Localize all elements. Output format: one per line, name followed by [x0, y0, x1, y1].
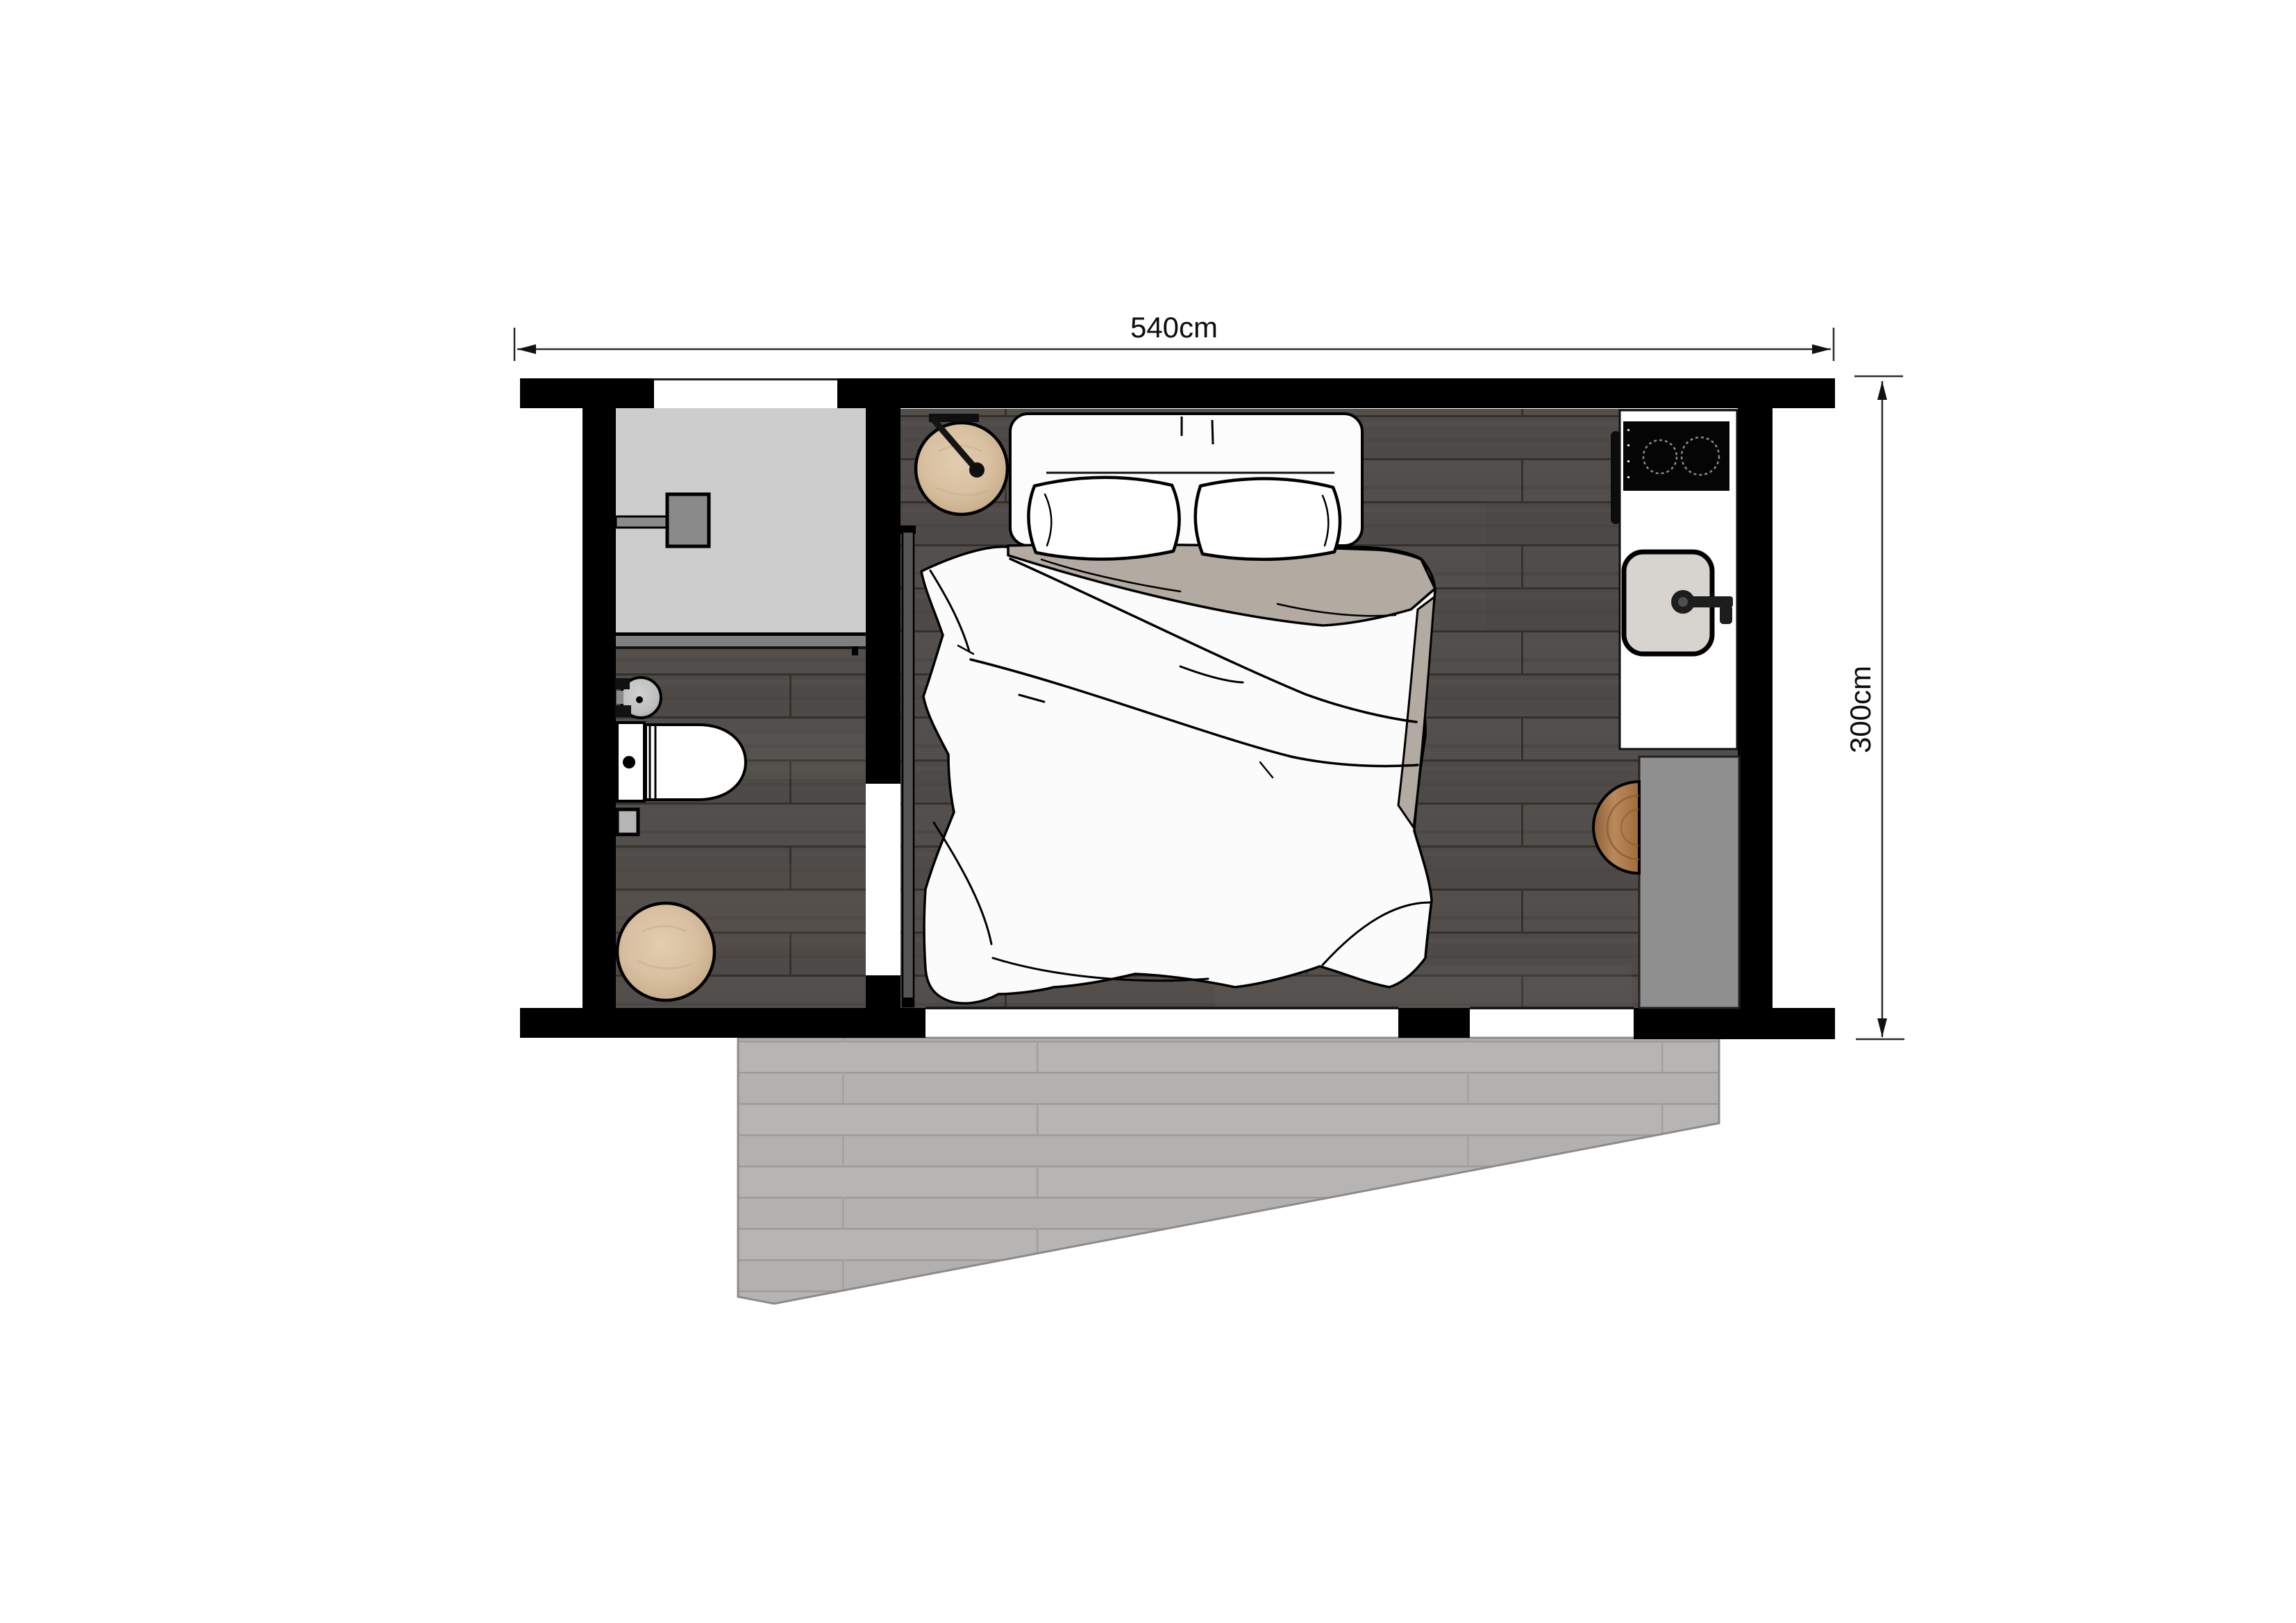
svg-text:300cm: 300cm	[1844, 666, 1877, 753]
svg-text:540cm: 540cm	[1130, 311, 1218, 344]
